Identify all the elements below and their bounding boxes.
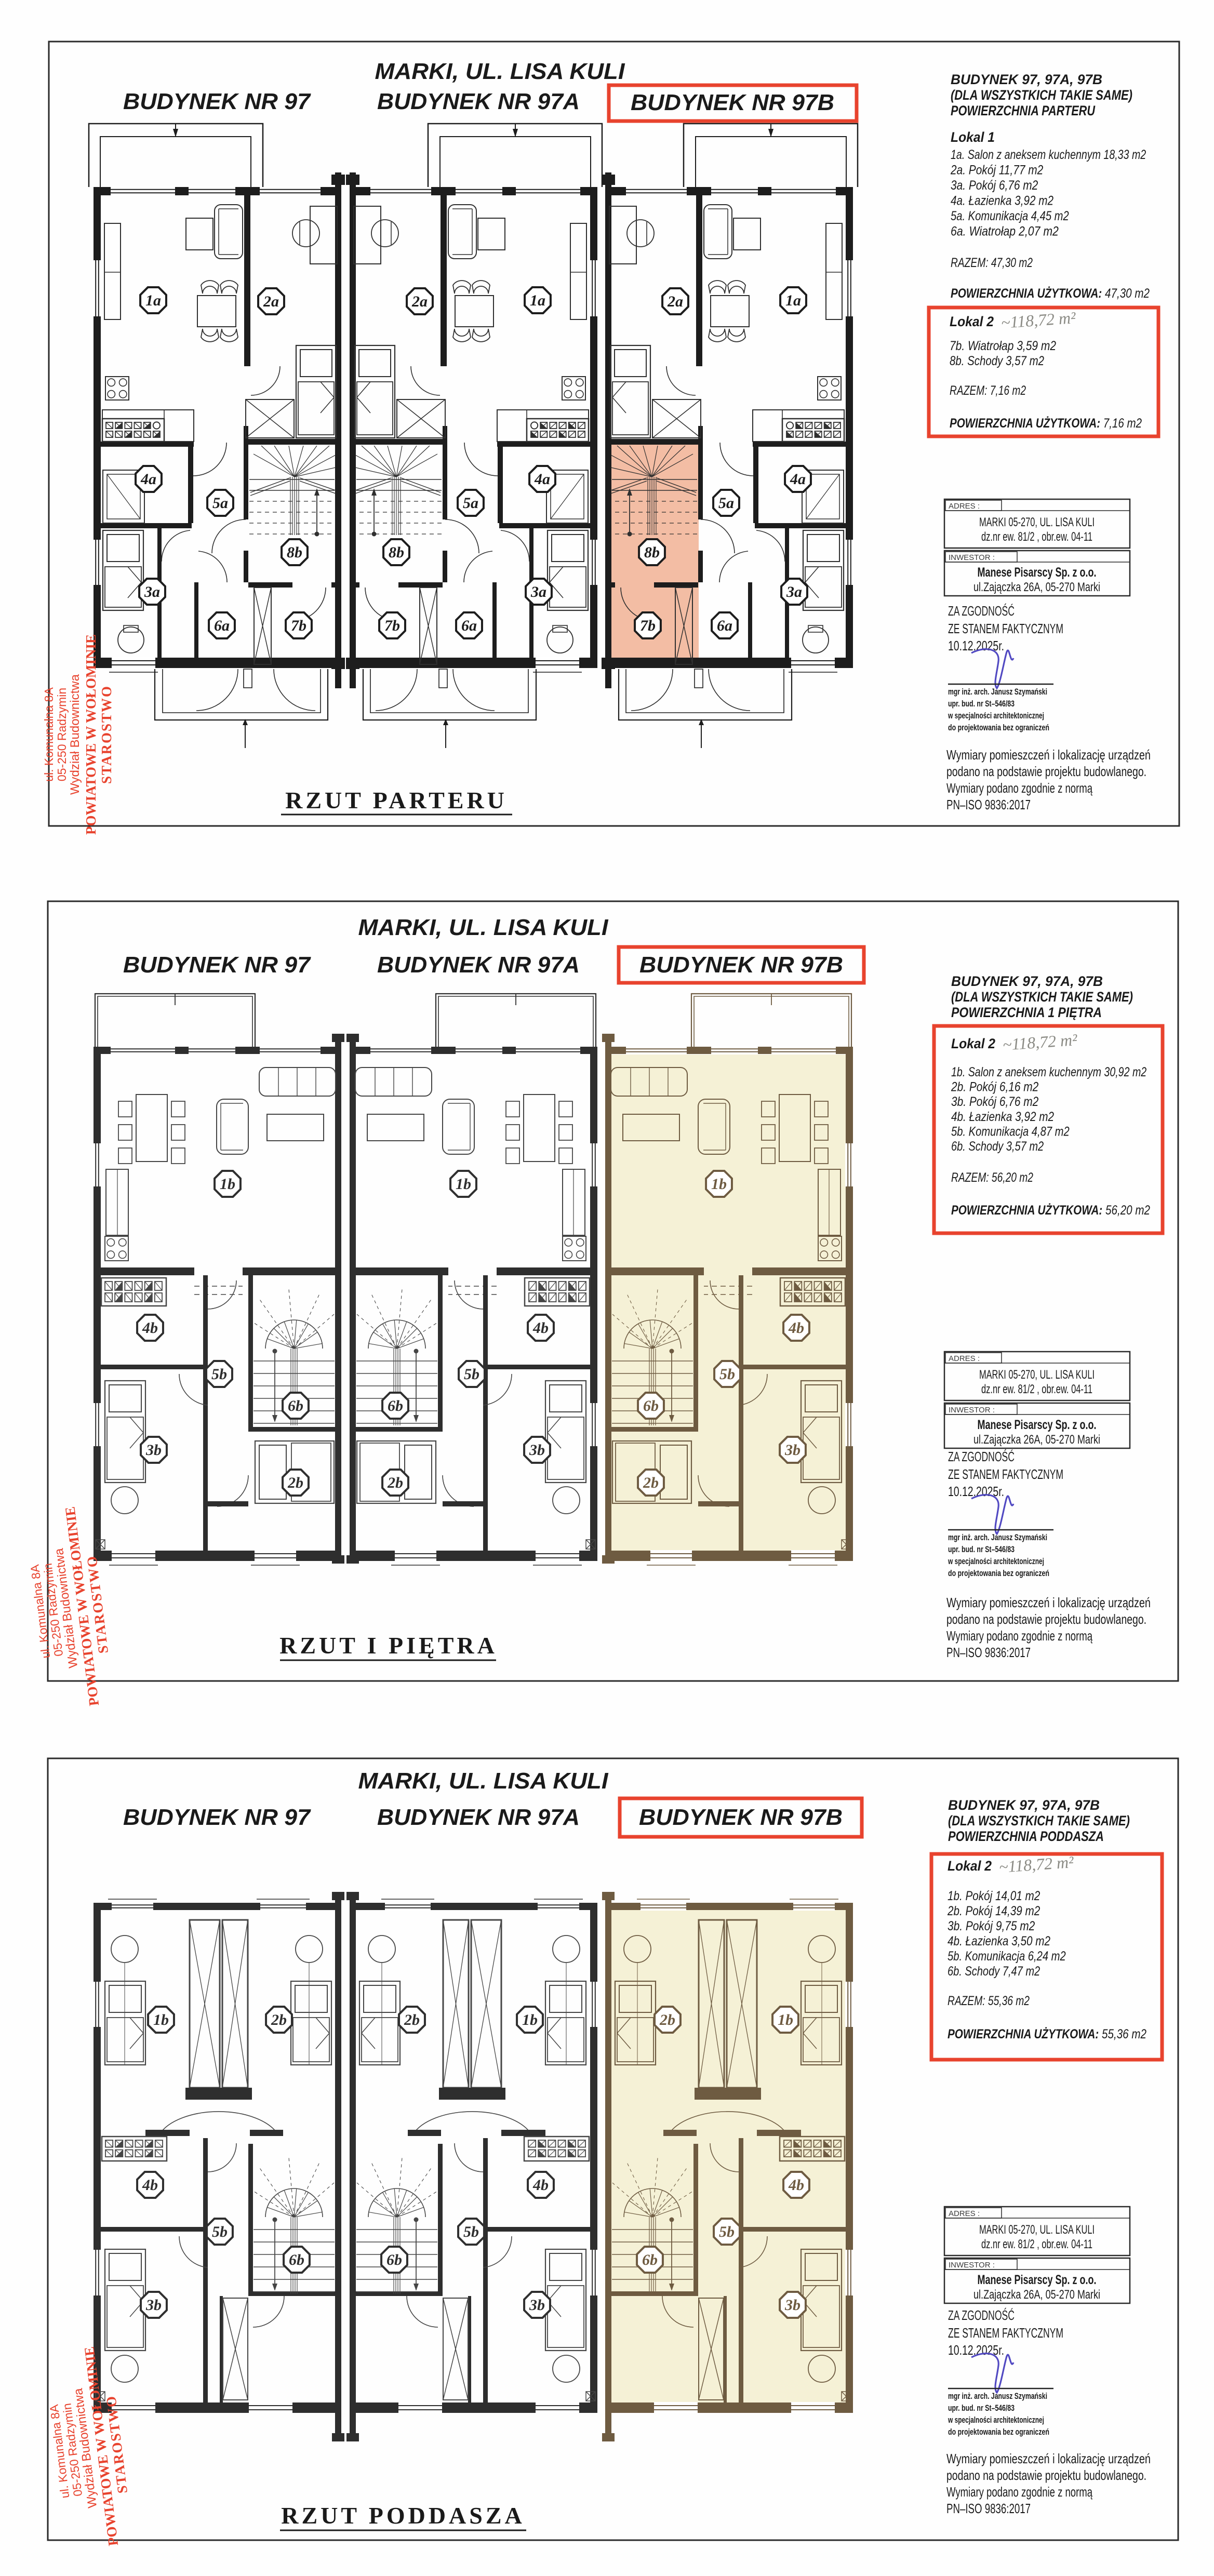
svg-text:1a: 1a [785, 292, 801, 309]
svg-text:4b: 4b [532, 1319, 549, 1337]
svg-text:Wymiary pomieszczeń i lokaliza: Wymiary pomieszczeń i lokalizację urządz… [946, 1595, 1151, 1610]
svg-text:ZA ZGODNOŚĆ: ZA ZGODNOŚĆ [948, 2307, 1015, 2323]
svg-text:BUDYNEK NR 97: BUDYNEK NR 97 [123, 952, 312, 978]
svg-text:5a. Komunikacja 4,45 m2: 5a. Komunikacja 4,45 m2 [951, 209, 1069, 223]
svg-text:6a: 6a [214, 617, 230, 634]
svg-text:(DLA WSZYSTKICH TAKIE SAME): (DLA WSZYSTKICH TAKIE SAME) [951, 87, 1132, 103]
svg-text:ul.Zajączka 26A, 05-270 Marki: ul.Zajączka 26A, 05-270 Marki [973, 580, 1100, 594]
svg-text:4a: 4a [140, 471, 156, 488]
svg-text:6b: 6b [288, 1397, 303, 1414]
svg-text:4b: 4b [788, 1319, 804, 1337]
svg-text:upr. bud. nr St–546/83: upr. bud. nr St–546/83 [948, 699, 1015, 709]
svg-text:mgr inż. arch. Janusz Szymań: mgr inż. arch. Janusz Szymański [948, 1532, 1047, 1542]
svg-text:5a: 5a [463, 495, 478, 512]
svg-text:MARKI 05-270, UL. LISA KULI: MARKI 05-270, UL. LISA KULI [979, 515, 1095, 529]
svg-text:5a: 5a [212, 495, 228, 512]
svg-text:3a: 3a [530, 583, 546, 600]
svg-text:(DLA WSZYSTKICH TAKIE SAME): (DLA WSZYSTKICH TAKIE SAME) [951, 989, 1133, 1005]
svg-text:ul.Zajączka 26A, 05-270 Marki: ul.Zajączka 26A, 05-270 Marki [973, 2288, 1100, 2302]
svg-text:7b: 7b [384, 617, 400, 634]
svg-text:RZUT PARTERU: RZUT PARTERU [285, 787, 508, 813]
svg-text:6a. Wiatrołap 2,07 m2: 6a. Wiatrołap 2,07 m2 [951, 224, 1059, 239]
svg-text:ADRES :: ADRES : [949, 1354, 980, 1363]
svg-text:POWIATOWE W WOŁOMINIE: POWIATOWE W WOŁOMINIE [83, 634, 99, 835]
svg-text:1b. Pokój 14,01 m2: 1b. Pokój 14,01 m2 [948, 1889, 1040, 1903]
svg-text:7b: 7b [640, 617, 656, 634]
svg-text:ZE STANEM FAKTYCZNYM: ZE STANEM FAKTYCZNYM [948, 2325, 1063, 2341]
svg-text:RAZEM: 55,36 m2: RAZEM: 55,36 m2 [948, 1994, 1030, 2008]
svg-text:1b. Salon z aneksem kuchennym: 1b. Salon z aneksem kuchennym 30,92 m2 [951, 1065, 1146, 1079]
svg-text:ADRES :: ADRES : [949, 502, 980, 511]
svg-text:mgr inż. arch. Janusz Szymań: mgr inż. arch. Janusz Szymański [948, 2391, 1047, 2401]
svg-text:Wymiary pomieszczeń i lokaliza: Wymiary pomieszczeń i lokalizację urządz… [946, 2451, 1151, 2466]
svg-text:POWIERZCHNIA UŻYTKOWA: 47,30 m: POWIERZCHNIA UŻYTKOWA: 47,30 m2 [951, 286, 1150, 301]
svg-text:2a. Pokój 11,77 m2: 2a. Pokój 11,77 m2 [950, 163, 1043, 178]
svg-text:do projektowania bez ogranicze: do projektowania bez ograniczeń [948, 2427, 1049, 2437]
svg-text:mgr inż. arch. Janusz Szymań: mgr inż. arch. Janusz Szymański [948, 687, 1047, 697]
svg-text:6b: 6b [643, 1397, 659, 1414]
svg-text:5b: 5b [212, 2223, 228, 2240]
svg-text:5b: 5b [464, 1366, 479, 1383]
svg-text:do projektowania bez ogranicze: do projektowania bez ograniczeń [948, 1568, 1049, 1578]
svg-text:Wymiary podano zgodnie z normą: Wymiary podano zgodnie z normą [946, 2484, 1092, 2500]
svg-text:POWIERZCHNIA UŻYTKOWA: 56,20 m: POWIERZCHNIA UŻYTKOWA: 56,20 m2 [951, 1203, 1150, 1218]
svg-text:6a: 6a [717, 617, 732, 634]
svg-text:3a: 3a [786, 583, 802, 600]
svg-text:4b: 4b [788, 2177, 804, 2194]
svg-text:upr. bud. nr St–546/83: upr. bud. nr St–546/83 [948, 2403, 1015, 2413]
svg-text:ZA ZGODNOŚĆ: ZA ZGODNOŚĆ [948, 603, 1015, 619]
svg-text:dz.nr ew. 81/2 , obr.ew. 04-11: dz.nr ew. 81/2 , obr.ew. 04-11 [981, 1382, 1092, 1396]
svg-text:1b: 1b [778, 2011, 793, 2028]
svg-text:MARKI 05-270, UL. LISA KULI: MARKI 05-270, UL. LISA KULI [979, 2223, 1095, 2237]
svg-text:1b: 1b [220, 1176, 235, 1193]
svg-text:2b: 2b [271, 2011, 287, 2028]
svg-text:3b. Pokój 9,75 m2: 3b. Pokój 9,75 m2 [948, 1919, 1035, 1933]
svg-text:RAZEM: 47,30 m2: RAZEM: 47,30 m2 [951, 256, 1033, 270]
svg-text:3b: 3b [784, 1442, 801, 1459]
svg-text:4b: 4b [142, 2177, 158, 2194]
svg-text:6b. Schody 3,57 m2: 6b. Schody 3,57 m2 [951, 1139, 1044, 1154]
svg-text:RZUT I PIĘTRA: RZUT I PIĘTRA [279, 1632, 498, 1659]
svg-text:5a: 5a [718, 495, 734, 512]
svg-text:3b: 3b [145, 2297, 162, 2314]
svg-text:Manese Pisarscy Sp. z o.o.: Manese Pisarscy Sp. z o.o. [978, 2273, 1097, 2287]
svg-text:1a: 1a [530, 292, 545, 309]
svg-text:Wymiary podano zgodnie z normą: Wymiary podano zgodnie z normą [946, 780, 1092, 796]
svg-text:podano na podstawie projektu b: podano na podstawie projektu budowlanego… [946, 1611, 1146, 1627]
svg-text:RAZEM: 7,16 m2: RAZEM: 7,16 m2 [950, 383, 1026, 398]
svg-text:STAROSTWO: STAROSTWO [99, 685, 114, 784]
svg-text:2a: 2a [411, 293, 428, 310]
svg-text:BUDYNEK NR 97: BUDYNEK NR 97 [123, 89, 312, 114]
svg-text:1a. Salon z aneksem kuchennym: 1a. Salon z aneksem kuchennym 18,33 m2 [951, 148, 1146, 162]
svg-text:3b: 3b [529, 2297, 545, 2314]
svg-text:Lokal 2: Lokal 2 [948, 1858, 992, 1874]
svg-text:4b: 4b [142, 1319, 158, 1337]
svg-text:ul. Komunalna 8A: ul. Komunalna 8A [42, 687, 56, 782]
svg-text:6b: 6b [289, 2251, 304, 2268]
svg-text:1b: 1b [711, 1176, 727, 1193]
svg-text:BUDYNEK NR 97A: BUDYNEK NR 97A [377, 89, 580, 114]
svg-text:podano na podstawie projektu b: podano na podstawie projektu budowlanego… [946, 2467, 1146, 2483]
svg-text:4a. Łazienka 3,92 m2: 4a. Łazienka 3,92 m2 [951, 194, 1053, 208]
svg-text:INWESTOR :: INWESTOR : [949, 1406, 995, 1414]
svg-text:Lokal 1: Lokal 1 [951, 129, 995, 145]
svg-text:6b: 6b [642, 2251, 658, 2268]
svg-text:PN–ISO 9836:2017: PN–ISO 9836:2017 [946, 2501, 1031, 2516]
svg-text:4b. Łazienka 3,92 m2: 4b. Łazienka 3,92 m2 [951, 1110, 1054, 1124]
svg-text:POWIERZCHNIA UŻYTKOWA: 7,16 m2: POWIERZCHNIA UŻYTKOWA: 7,16 m2 [950, 416, 1142, 431]
svg-text:2b: 2b [404, 2011, 420, 2028]
svg-text:Manese Pisarscy Sp. z o.o.: Manese Pisarscy Sp. z o.o. [978, 565, 1097, 580]
svg-text:POWIERZCHNIA PODDASZA: POWIERZCHNIA PODDASZA [948, 1828, 1104, 1844]
svg-text:1a: 1a [145, 292, 161, 309]
svg-text:3b: 3b [145, 1442, 162, 1459]
svg-text:ZE STANEM FAKTYCZNYM: ZE STANEM FAKTYCZNYM [948, 1466, 1063, 1482]
svg-text:BUDYNEK NR 97B: BUDYNEK NR 97B [631, 90, 834, 115]
svg-text:w specjalności architektoniczn: w specjalności architektonicznej [948, 711, 1044, 720]
svg-text:05-250 Radzymin: 05-250 Radzymin [55, 688, 69, 781]
svg-text:PN–ISO 9836:2017: PN–ISO 9836:2017 [946, 1645, 1031, 1660]
svg-text:6a: 6a [461, 617, 477, 634]
svg-text:ul.Zajączka 26A, 05-270 Marki: ul.Zajączka 26A, 05-270 Marki [973, 1433, 1100, 1447]
svg-text:1b: 1b [522, 2011, 538, 2028]
svg-text:RZUT PODDASZA: RZUT PODDASZA [281, 2502, 525, 2529]
svg-text:6b: 6b [388, 1397, 403, 1414]
svg-text:2b: 2b [643, 1474, 659, 1491]
svg-text:3b: 3b [529, 1442, 545, 1459]
svg-text:7b: 7b [291, 617, 306, 634]
svg-text:MARKI, UL. LISA KULI: MARKI, UL. LISA KULI [358, 1768, 609, 1794]
svg-text:MARKI 05-270, UL. LISA KULI: MARKI 05-270, UL. LISA KULI [979, 1368, 1095, 1382]
svg-text:8b: 8b [287, 544, 302, 561]
svg-text:4a: 4a [534, 471, 550, 488]
svg-text:1b: 1b [153, 2011, 169, 2028]
svg-text:6b. Schody 7,47 m2: 6b. Schody 7,47 m2 [948, 1964, 1040, 1979]
svg-text:POWIERZCHNIA PARTERU: POWIERZCHNIA PARTERU [951, 103, 1096, 118]
svg-text:BUDYNEK 97, 97A, 97B: BUDYNEK 97, 97A, 97B [951, 973, 1103, 989]
svg-text:RAZEM: 56,20 m2: RAZEM: 56,20 m2 [951, 1170, 1033, 1185]
svg-text:Manese Pisarscy Sp. z o.o.: Manese Pisarscy Sp. z o.o. [978, 1418, 1097, 1432]
svg-text:Lokal 2: Lokal 2 [950, 314, 994, 329]
svg-text:BUDYNEK NR 97B: BUDYNEK NR 97B [639, 952, 843, 978]
svg-text:2b: 2b [659, 2011, 675, 2028]
svg-text:podano na podstawie projektu b: podano na podstawie projektu budowlanego… [946, 764, 1146, 779]
svg-text:PN–ISO 9836:2017: PN–ISO 9836:2017 [946, 797, 1031, 812]
svg-text:4b. Łazienka 3,50 m2: 4b. Łazienka 3,50 m2 [948, 1934, 1050, 1948]
svg-text:BUDYNEK NR 97B: BUDYNEK NR 97B [639, 1805, 843, 1830]
svg-text:dz.nr ew. 81/2 , obr.ew. 04-11: dz.nr ew. 81/2 , obr.ew. 04-11 [981, 2237, 1092, 2251]
svg-text:8b. Schody 3,57 m2: 8b. Schody 3,57 m2 [950, 354, 1044, 368]
svg-text:ZA ZGODNOŚĆ: ZA ZGODNOŚĆ [948, 1449, 1015, 1464]
svg-text:ADRES :: ADRES : [949, 2209, 980, 2218]
svg-text:2b. Pokój 14,39 m2: 2b. Pokój 14,39 m2 [947, 1904, 1040, 1918]
svg-text:5b: 5b [719, 1366, 735, 1383]
svg-text:POWIERZCHNIA UŻYTKOWA: 55,36 m: POWIERZCHNIA UŻYTKOWA: 55,36 m2 [948, 2027, 1146, 2041]
svg-text:Wymiary podano zgodnie z normą: Wymiary podano zgodnie z normą [946, 1628, 1092, 1644]
svg-text:2a: 2a [263, 293, 279, 310]
svg-text:MARKI, UL. LISA KULI: MARKI, UL. LISA KULI [375, 59, 625, 84]
svg-text:5b. Komunikacja 4,87 m2: 5b. Komunikacja 4,87 m2 [951, 1124, 1070, 1139]
svg-text:Wymiary pomieszczeń i lokaliza: Wymiary pomieszczeń i lokalizację urządz… [946, 747, 1151, 763]
svg-text:INWESTOR :: INWESTOR : [949, 553, 995, 562]
svg-text:w specjalności architektoniczn: w specjalności architektonicznej [948, 1556, 1044, 1566]
svg-text:BUDYNEK 97, 97A, 97B: BUDYNEK 97, 97A, 97B [951, 72, 1102, 87]
svg-text:2a: 2a [667, 293, 683, 310]
svg-text:POWIERZCHNIA 1 PIĘTRA: POWIERZCHNIA 1 PIĘTRA [951, 1005, 1102, 1020]
svg-text:7b. Wiatrołap 3,59 m2: 7b. Wiatrołap 3,59 m2 [950, 339, 1056, 353]
svg-text:(DLA WSZYSTKICH TAKIE SAME): (DLA WSZYSTKICH TAKIE SAME) [948, 1813, 1130, 1828]
svg-text:BUDYNEK 97, 97A, 97B: BUDYNEK 97, 97A, 97B [948, 1797, 1100, 1813]
svg-text:do projektowania bez ogranicze: do projektowania bez ograniczeń [948, 723, 1049, 732]
svg-text:BUDYNEK NR 97A: BUDYNEK NR 97A [377, 1805, 580, 1830]
svg-text:6b: 6b [386, 2251, 402, 2268]
svg-text:3b: 3b [784, 2297, 801, 2314]
svg-text:upr. bud. nr St–546/83: upr. bud. nr St–546/83 [948, 1544, 1015, 1554]
svg-text:3a. Pokój 6,76 m2: 3a. Pokój 6,76 m2 [951, 178, 1038, 193]
svg-text:2b: 2b [287, 1474, 303, 1491]
svg-text:8b: 8b [644, 544, 660, 561]
svg-text:BUDYNEK NR 97: BUDYNEK NR 97 [123, 1805, 312, 1830]
svg-text:MARKI, UL. LISA KULI: MARKI, UL. LISA KULI [358, 915, 609, 940]
svg-text:2b: 2b [387, 1474, 403, 1491]
svg-text:3b. Pokój 6,76 m2: 3b. Pokój 6,76 m2 [951, 1095, 1038, 1109]
svg-text:5b. Komunikacja 6,24 m2: 5b. Komunikacja 6,24 m2 [948, 1949, 1066, 1964]
svg-text:Wydział Budownictwa: Wydział Budownictwa [68, 674, 82, 795]
svg-text:w specjalności architektoniczn: w specjalności architektonicznej [948, 2415, 1044, 2425]
svg-text:1b: 1b [456, 1176, 471, 1193]
svg-text:BUDYNEK NR 97A: BUDYNEK NR 97A [377, 952, 580, 978]
svg-text:8b: 8b [389, 544, 404, 561]
svg-text:INWESTOR :: INWESTOR : [949, 2261, 995, 2270]
svg-text:dz.nr ew. 81/2 , obr.ew. 04-11: dz.nr ew. 81/2 , obr.ew. 04-11 [981, 530, 1092, 544]
svg-text:4b: 4b [532, 2177, 549, 2194]
svg-text:5b: 5b [463, 2223, 479, 2240]
svg-text:4a: 4a [790, 471, 806, 488]
svg-text:ZE STANEM FAKTYCZNYM: ZE STANEM FAKTYCZNYM [948, 621, 1063, 636]
svg-text:5b: 5b [719, 2223, 735, 2240]
svg-text:2b. Pokój 6,16 m2: 2b. Pokój 6,16 m2 [951, 1080, 1038, 1095]
svg-text:Lokal 2: Lokal 2 [951, 1036, 995, 1051]
svg-text:3a: 3a [144, 583, 160, 600]
svg-text:5b: 5b [211, 1366, 227, 1383]
